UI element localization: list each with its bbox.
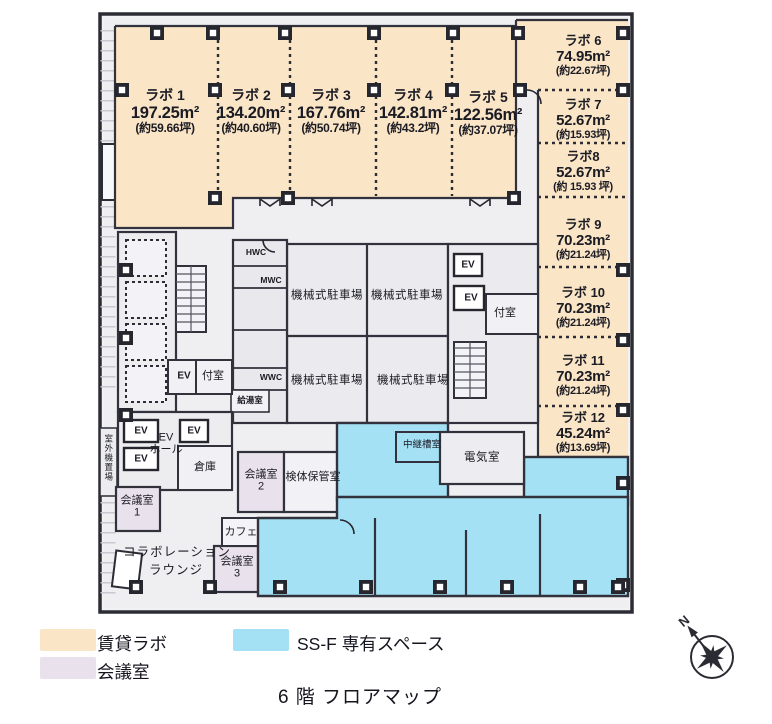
lab-area: 122.56m² <box>454 106 522 124</box>
meeting-name: 会議室 <box>121 495 154 507</box>
room-label-ev-r2: EV <box>464 292 477 303</box>
legend-label-meeting-room: 会議室 <box>97 659 150 684</box>
room-label-collab-line2: ラウンジ <box>149 563 203 577</box>
lab-area: 70.23m² <box>556 301 610 318</box>
lab-label-2: ラボ 2 134.20m² (約40.60坪) <box>217 88 285 136</box>
room-label-hot-water: 給湯室 <box>237 396 263 406</box>
lab-tsubo: (約 15.93 坪) <box>553 182 613 194</box>
room-label-specimen: 検体保管室 <box>286 471 341 483</box>
lab-area: 197.25m² <box>131 104 199 122</box>
room-label-ev-hall: EV ホール <box>150 432 183 457</box>
lab-name: ラボ 3 <box>297 88 365 104</box>
lab-label-3: ラボ 3 167.76m² (約50.74坪) <box>297 88 365 136</box>
lab-tsubo: (約13.69坪) <box>556 443 610 455</box>
legend-swatch-ssf-space <box>233 629 289 651</box>
room-label-electrical: 電気室 <box>464 452 500 465</box>
room-label-anteroom-top: 付室 <box>202 370 224 382</box>
room-label-cafe: カフェ <box>225 526 258 538</box>
meeting-number: 1 <box>121 507 154 519</box>
lab-label-5: ラボ 5 122.56m² (約37.07坪) <box>454 90 522 138</box>
elevator-core-right <box>448 244 538 423</box>
lab-label-12: ラボ 12 45.24m² (約13.69坪) <box>556 411 610 455</box>
ev-hall-line2: ホール <box>150 444 183 456</box>
room-label-parking-1: 機械式駐車場 <box>291 290 363 303</box>
lab-area: 167.76m² <box>297 104 365 122</box>
room-label-hwc: HWC <box>246 248 266 258</box>
room-label-collab-line1: コラボレーション <box>123 545 231 559</box>
room-label-ev-top: EV <box>177 370 190 381</box>
room-label-ev-bl2: EV <box>187 425 200 436</box>
room-label-wwc: WWC <box>260 373 282 383</box>
lab-name: ラボ 5 <box>454 90 522 106</box>
lab-name: ラボ 4 <box>379 88 447 104</box>
lab-area: 134.20m² <box>217 104 285 122</box>
room-label-outdoor-unit: 室外機置場 <box>103 434 113 482</box>
lab-area: 70.23m² <box>556 369 610 386</box>
lab-name: ラボ 10 <box>556 286 610 301</box>
lab-name: ラボ 11 <box>556 354 610 369</box>
lab-area: 74.95m² <box>556 49 610 66</box>
legend-swatch-rental-lab <box>40 629 96 651</box>
legend-label-rental-lab: 賃貸ラボ <box>97 631 167 656</box>
lab-tsubo: (約22.67坪) <box>556 66 610 78</box>
lab-area: 52.67m² <box>556 113 610 130</box>
lab-tsubo: (約15.93坪) <box>556 130 610 142</box>
floor-map-title: 6 階 フロアマップ <box>278 682 442 709</box>
lab-area: 52.67m² <box>553 165 613 182</box>
meeting-name: 会議室 <box>245 469 278 481</box>
room-label-mwc: MWC <box>260 276 281 286</box>
lab-label-1: ラボ 1 197.25m² (約59.66坪) <box>131 88 199 136</box>
room-label-relay-tank: 中継槽室 <box>403 441 441 452</box>
room-label-parking-3: 機械式駐車場 <box>291 375 363 388</box>
room-label-ev-bl3: EV <box>134 453 147 464</box>
lab-label-10: ラボ 10 70.23m² (約21.24坪) <box>556 286 610 330</box>
lab-tsubo: (約50.74坪) <box>297 122 365 135</box>
lab-tsubo: (約43.2坪) <box>379 122 447 135</box>
room-label-ev-r1: EV <box>461 259 474 270</box>
lab-name: ラボ 9 <box>556 218 610 233</box>
room-label-ev-bl1: EV <box>134 425 147 436</box>
lab-label-7: ラボ 7 52.67m² (約15.93坪) <box>556 98 610 142</box>
lab-name: ラボ 6 <box>556 34 610 49</box>
lab-tsubo: (約21.24坪) <box>556 386 610 398</box>
lab-label-11: ラボ 11 70.23m² (約21.24坪) <box>556 354 610 398</box>
room-label-storage: 倉庫 <box>194 461 216 473</box>
room-label-meeting-3: 会議室 3 <box>221 556 254 581</box>
lab-area: 142.81m² <box>379 104 447 122</box>
lab-tsubo: (約21.24坪) <box>556 250 610 262</box>
lab-name: ラボ 1 <box>131 88 199 104</box>
lab-area: 45.24m² <box>556 426 610 443</box>
parking-block <box>287 244 448 423</box>
legend-label-ssf-space: SS-F 専有スペース <box>297 631 445 656</box>
lab-tsubo: (約21.24坪) <box>556 318 610 330</box>
lab-tsubo: (約59.66坪) <box>131 122 199 135</box>
lab-label-9: ラボ 9 70.23m² (約21.24坪) <box>556 218 610 262</box>
room-label-anteroom-right: 付室 <box>494 307 516 319</box>
room-label-meeting-1: 会議室 1 <box>121 495 154 520</box>
lab-area: 70.23m² <box>556 233 610 250</box>
lab-tsubo: (約40.60坪) <box>217 122 285 135</box>
lab-label-6: ラボ 6 74.95m² (約22.67坪) <box>556 34 610 78</box>
lab-name: ラボ 7 <box>556 98 610 113</box>
lab-tsubo: (約37.07坪) <box>454 124 522 137</box>
ev-hall-line1: EV <box>150 432 183 444</box>
room-label-parking-2: 機械式駐車場 <box>371 290 443 303</box>
floor-map-page: ラボ 1 197.25m² (約59.66坪) ラボ 2 134.20m² (約… <box>0 0 772 724</box>
meeting-number: 3 <box>221 568 254 580</box>
lab-name: ラボ 12 <box>556 411 610 426</box>
lab-label-8: ラボ8 52.67m² (約 15.93 坪) <box>553 150 613 194</box>
legend-swatch-meeting-room <box>40 657 96 679</box>
room-label-parking-4: 機械式駐車場 <box>377 375 449 388</box>
lab-name: ラボ 2 <box>217 88 285 104</box>
room-label-meeting-2: 会議室 2 <box>245 469 278 494</box>
meeting-number: 2 <box>245 481 278 493</box>
lab-name: ラボ8 <box>553 150 613 165</box>
lab-label-4: ラボ 4 142.81m² (約43.2坪) <box>379 88 447 136</box>
